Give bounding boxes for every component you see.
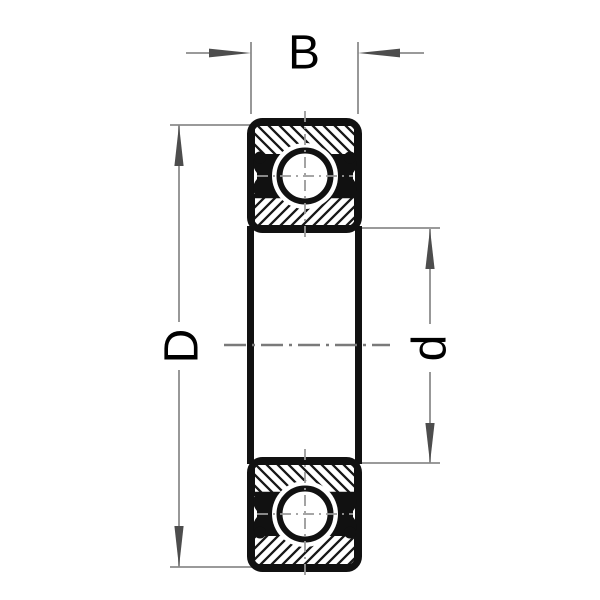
top-left-seal-notch <box>254 152 266 164</box>
bearing-drawing: B D d <box>0 0 600 600</box>
b-arrow-left-icon <box>209 49 251 58</box>
bearing-drawing-canvas: B D d <box>0 0 600 600</box>
b-arrow-right-icon <box>358 49 400 58</box>
label-outer-diameter: D <box>156 329 209 364</box>
d-outer-arrow-up-icon <box>174 125 183 166</box>
dimension-bore-diameter-d: d <box>357 228 457 463</box>
bearing-top-section <box>251 111 359 241</box>
d-bore-arrow-up-icon <box>425 229 434 269</box>
top-right-seal-notch <box>344 152 356 164</box>
d-bore-arrow-down-icon <box>425 423 434 463</box>
bearing-bottom-section <box>251 449 359 579</box>
d-outer-arrow-down-icon <box>174 526 183 567</box>
label-width-b: B <box>288 27 320 80</box>
bottom-left-seal-notch <box>254 527 266 539</box>
bottom-right-seal-notch <box>344 527 356 539</box>
dimension-b: B <box>186 27 424 115</box>
label-bore-diameter: d <box>404 335 457 362</box>
